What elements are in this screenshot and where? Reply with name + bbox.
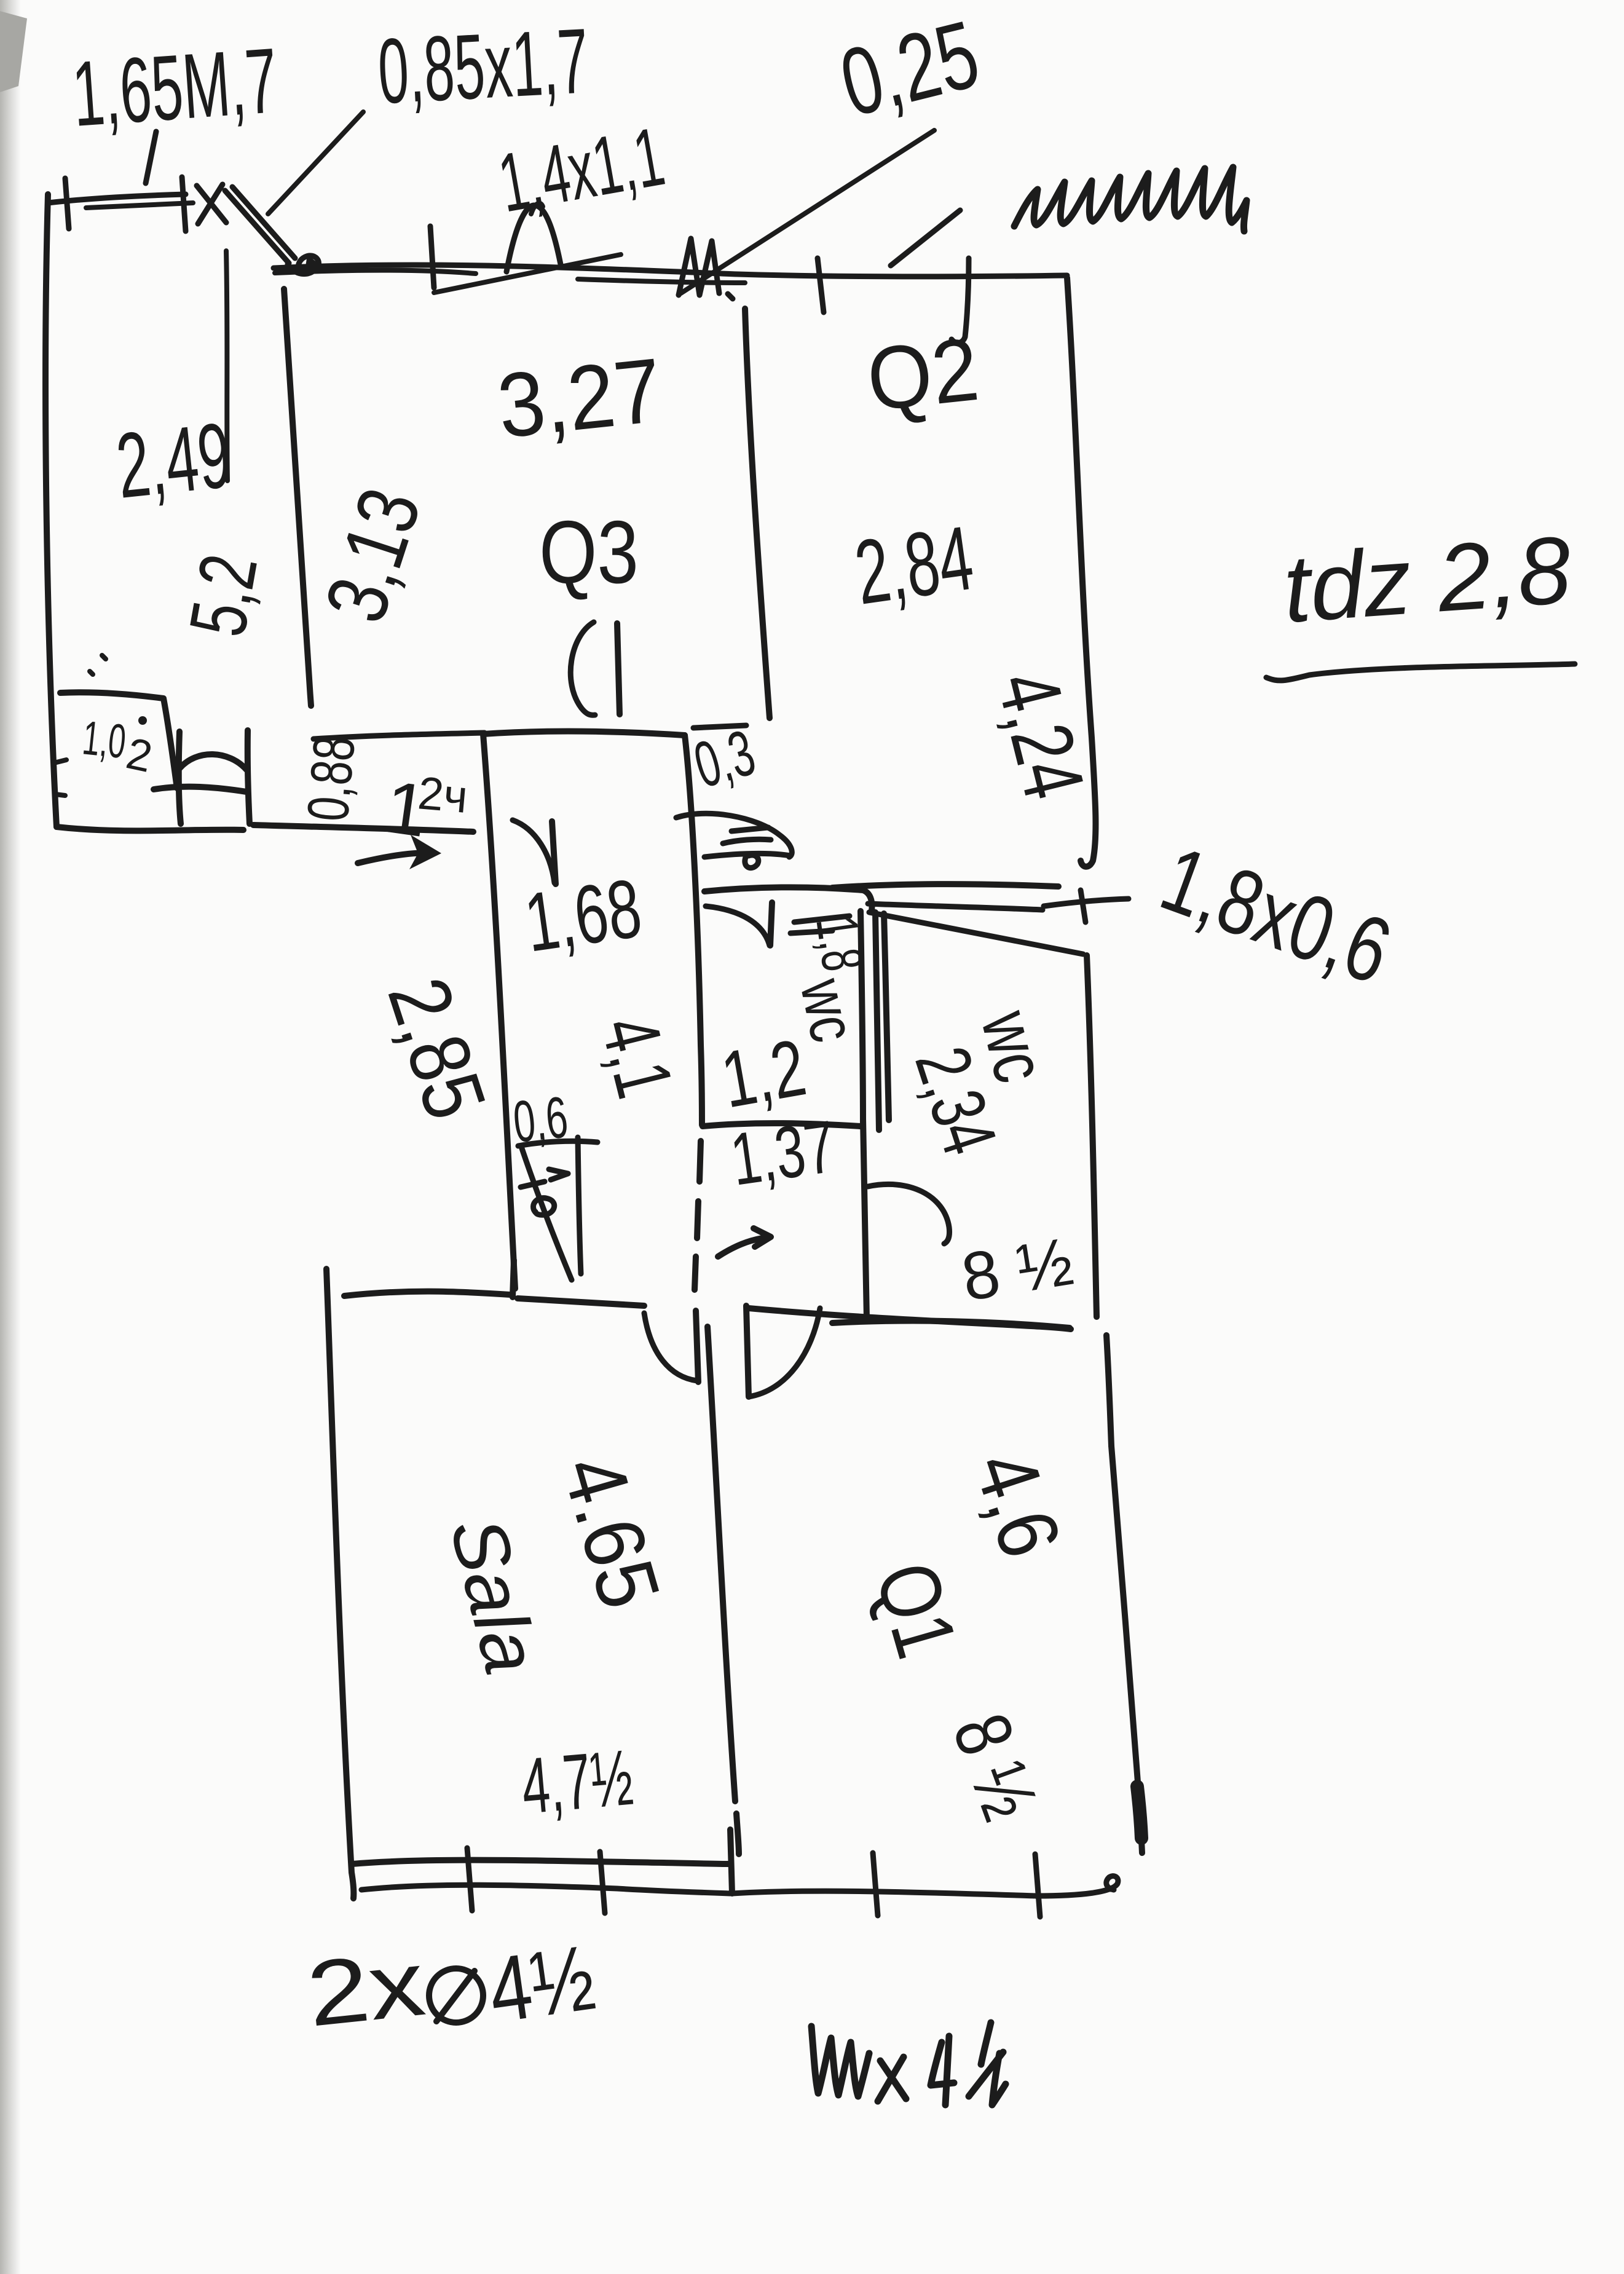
svg-text:4,7½: 4,7½ <box>518 1734 636 1831</box>
svg-text:1,65M,7: 1,65M,7 <box>69 28 281 146</box>
svg-text:5,2: 5,2 <box>172 548 274 642</box>
svg-text:2x: 2x <box>302 1931 430 2046</box>
svg-text:2,84: 2,84 <box>849 507 979 624</box>
svg-text:1,68: 1,68 <box>519 861 647 969</box>
svg-text:tdz 2,8: tdz 2,8 <box>1280 516 1574 642</box>
svg-text:3,27: 3,27 <box>493 339 666 457</box>
svg-text:Q2: Q2 <box>862 319 983 430</box>
svg-text:1,0: 1,0 <box>80 710 128 768</box>
svg-text:1,37: 1,37 <box>726 1105 840 1201</box>
svg-text:Q3: Q3 <box>539 502 639 602</box>
svg-text:2,49: 2,49 <box>112 403 236 517</box>
svg-text:4½: 4½ <box>483 1925 601 2042</box>
svg-text:2ч: 2ч <box>416 767 470 823</box>
svg-text:0,85x1,7: 0,85x1,7 <box>376 9 591 123</box>
svg-text:1,8: 1,8 <box>803 912 875 975</box>
svg-text:0,88: 0,88 <box>295 733 368 824</box>
